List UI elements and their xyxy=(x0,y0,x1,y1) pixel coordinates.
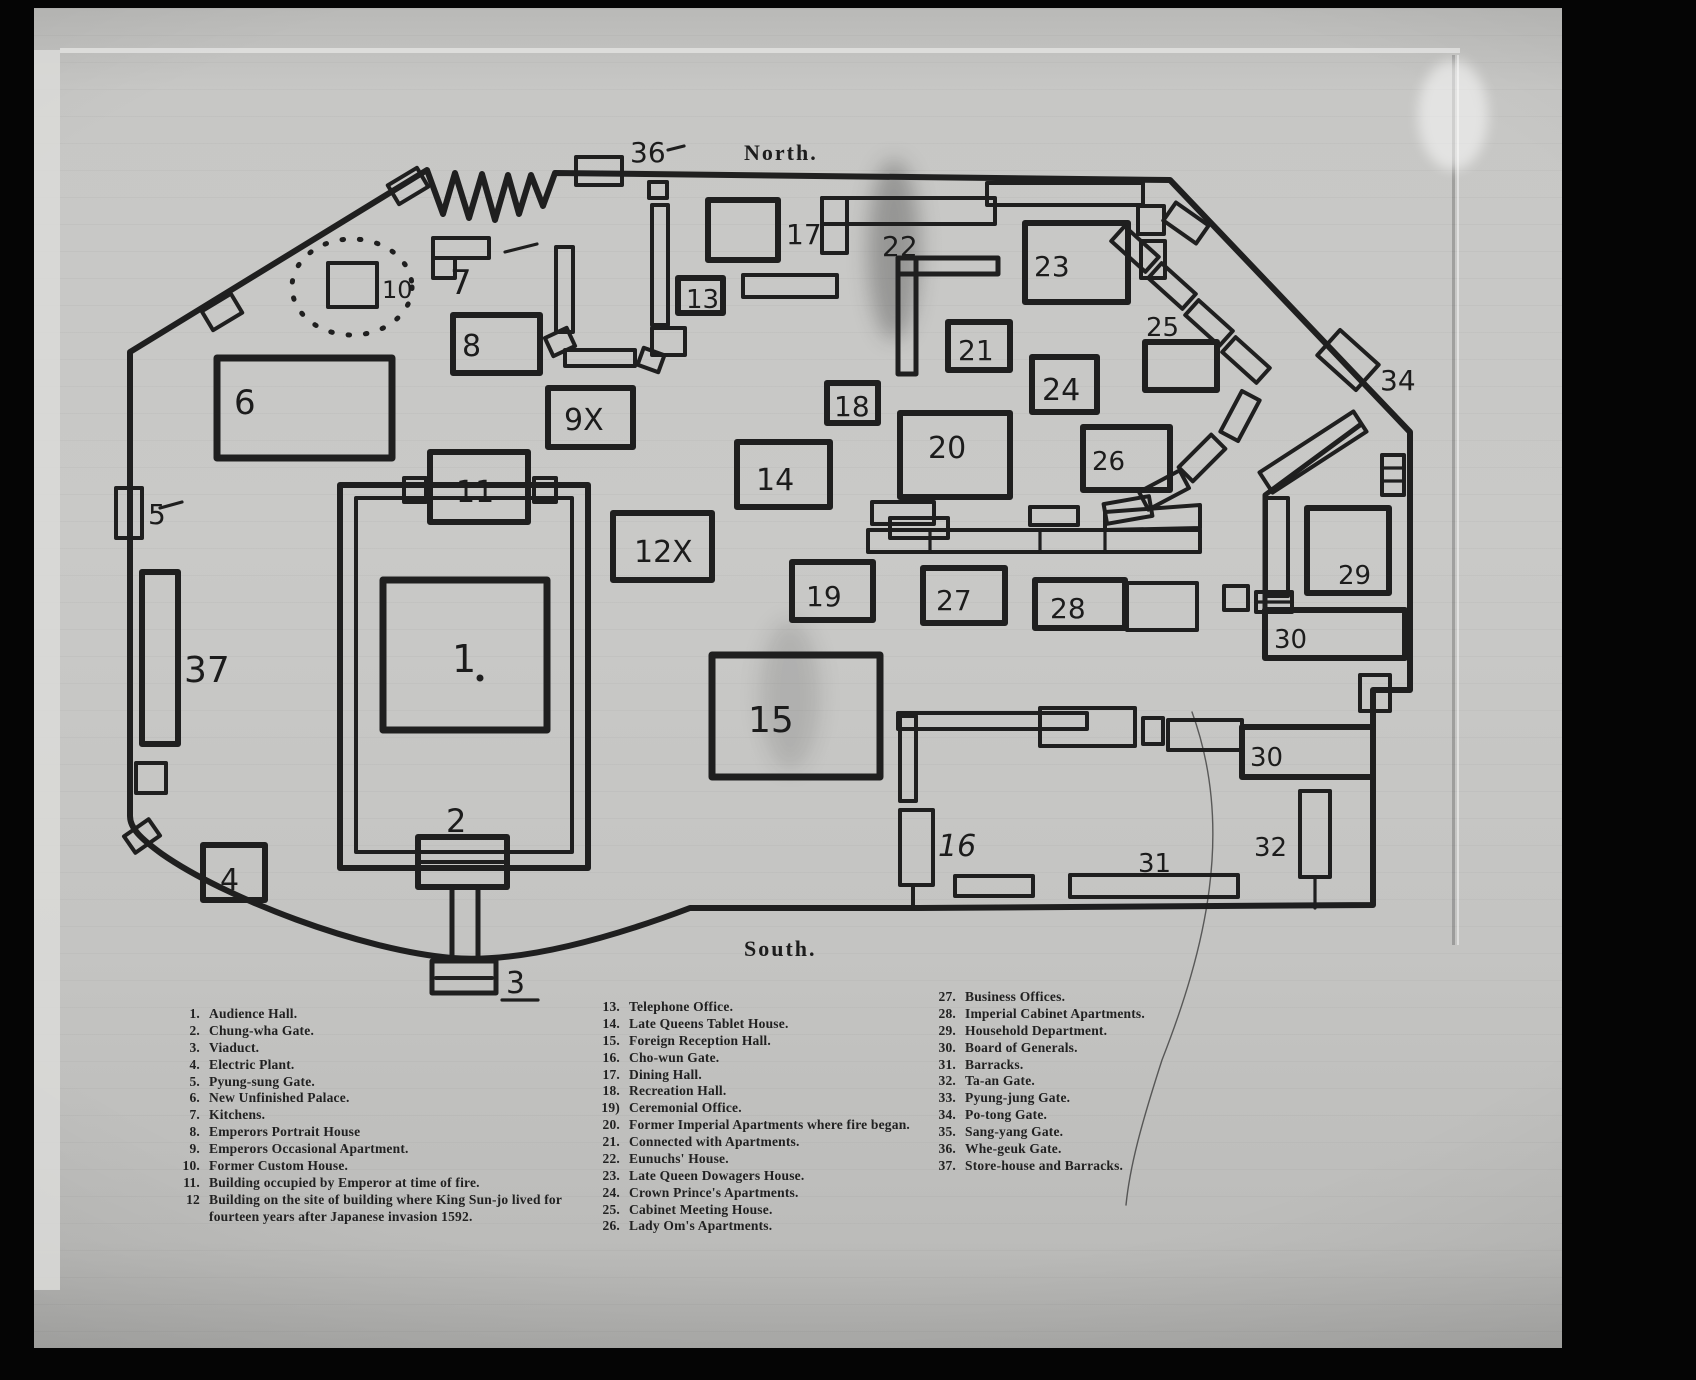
legend-item-number: 35. xyxy=(924,1124,965,1141)
legend-item: 37.Store-house and Barracks. xyxy=(924,1158,1264,1175)
legend-item-number: 8. xyxy=(168,1124,209,1141)
legend-item: 23.Late Queen Dowagers House. xyxy=(588,1168,980,1185)
legend-item: 9.Emperors Occasional Apartment. xyxy=(168,1141,568,1158)
legend-item: 36.Whe-geuk Gate. xyxy=(924,1141,1264,1158)
legend-item-text: Building on the site of building where K… xyxy=(209,1192,568,1226)
building-25-label: 25 xyxy=(1146,313,1179,343)
legend-item-text: Pyung-jung Gate. xyxy=(965,1090,1264,1107)
legend-item-text: Chung-wha Gate. xyxy=(209,1023,568,1040)
legend-item-number: 19) xyxy=(588,1100,629,1117)
legend-item-number: 23. xyxy=(588,1168,629,1185)
legend-item-text: Crown Prince's Apartments. xyxy=(629,1185,980,1202)
legend-item-number: 18. xyxy=(588,1083,629,1100)
building-17-label: 17 xyxy=(786,218,822,251)
legend-item-text: New Unfinished Palace. xyxy=(209,1090,568,1107)
legend-item-number: 30. xyxy=(924,1040,965,1057)
legend-item: 34.Po-tong Gate. xyxy=(924,1107,1264,1124)
legend-item-number: 16. xyxy=(588,1050,629,1067)
building-6-label: 6 xyxy=(234,383,256,423)
building-12x-label: 12X xyxy=(634,535,693,570)
emperors-occasional-apartment-9x: 9X xyxy=(548,388,633,447)
legend-item: 15.Foreign Reception Hall. xyxy=(588,1033,980,1050)
ta-an-gate-32: 32 xyxy=(1254,791,1330,908)
business-offices-27: 27 xyxy=(923,568,1005,623)
building-11-label: 11 xyxy=(456,475,494,510)
legend-item-text: Viaduct. xyxy=(209,1040,568,1057)
legend-item: 24.Crown Prince's Apartments. xyxy=(588,1185,980,1202)
legend-item-text: Cabinet Meeting House. xyxy=(629,1202,980,1219)
legend-item-number: 15. xyxy=(588,1033,629,1050)
ceremonial-office-19: 19 xyxy=(792,562,873,620)
building-21-label: 21 xyxy=(958,334,994,367)
building-20-label: 20 xyxy=(928,431,966,466)
former-custom-house-10: 10 xyxy=(292,239,413,335)
legend-item-number: 12 xyxy=(168,1192,209,1226)
legend-column-2: 13.Telephone Office.14.Late Queens Table… xyxy=(588,999,980,1235)
electric-plant-4: 4 xyxy=(203,845,265,900)
scanned-palace-map-page: 36 34 5 37 4 6 xyxy=(0,0,1696,1380)
legend-item-number: 7. xyxy=(168,1107,209,1124)
building-24-label: 24 xyxy=(1042,373,1080,408)
legend-item: 6.New Unfinished Palace. xyxy=(168,1090,568,1107)
legend-item-number: 36. xyxy=(924,1141,965,1158)
legend-item-number: 31. xyxy=(924,1057,965,1074)
legend-item-text: Sang-yang Gate. xyxy=(965,1124,1264,1141)
gate-16-label: 16 xyxy=(938,829,976,864)
legend-item: 32.Ta-an Gate. xyxy=(924,1073,1264,1090)
legend-item-number: 4. xyxy=(168,1057,209,1074)
board-of-generals-30-lower: 30 xyxy=(1242,727,1373,777)
building-27-label: 27 xyxy=(936,584,972,617)
imperial-cabinet-apartments-28: 28 xyxy=(1035,580,1197,630)
gate-2-label: 2 xyxy=(446,802,466,840)
legend-item-text: Whe-geuk Gate. xyxy=(965,1141,1264,1158)
legend-item-text: Building occupied by Emperor at time of … xyxy=(209,1175,568,1192)
legend-item-number: 14. xyxy=(588,1016,629,1033)
building-15-label: 15 xyxy=(748,700,794,741)
legend-item: 26.Lady Om's Apartments. xyxy=(588,1218,980,1235)
legend-column-3: 27.Business Offices.28.Imperial Cabinet … xyxy=(924,989,1264,1175)
legend-item: 8.Emperors Portrait House xyxy=(168,1124,568,1141)
viaduct-3: 3 xyxy=(432,887,538,1001)
legend-item: 1.Audience Hall. xyxy=(168,1006,568,1023)
gate-32-label: 32 xyxy=(1254,833,1287,863)
north-label: North. xyxy=(744,140,818,165)
building-1-label: 1 xyxy=(452,637,476,681)
building-7-label: 7 xyxy=(450,263,472,303)
legend-item: 20.Former Imperial Apartments where fire… xyxy=(588,1117,980,1134)
barracks-31: 31 xyxy=(955,849,1238,897)
legend-item: 17.Dining Hall. xyxy=(588,1067,980,1084)
legend-item: 10.Former Custom House. xyxy=(168,1158,568,1175)
legend-item: 13.Telephone Office. xyxy=(588,999,980,1016)
legend-item-text: Business Offices. xyxy=(965,989,1264,1006)
legend-item: 19)Ceremonial Office. xyxy=(588,1100,980,1117)
legend-item-number: 9. xyxy=(168,1141,209,1158)
legend-item: 27.Business Offices. xyxy=(924,989,1264,1006)
dining-hall-17: 17 xyxy=(708,200,822,260)
legend-item-text: Ta-an Gate. xyxy=(965,1073,1264,1090)
building-29-label: 29 xyxy=(1338,561,1371,591)
building-4-label: 4 xyxy=(220,863,239,898)
legend-item-number: 20. xyxy=(588,1117,629,1134)
legend-item: 35.Sang-yang Gate. xyxy=(924,1124,1264,1141)
imperial-apartments-20: 20 xyxy=(900,413,1010,497)
legend-item-number: 27. xyxy=(924,989,965,1006)
new-unfinished-palace-6: 6 xyxy=(217,358,392,458)
legend-item-number: 32. xyxy=(924,1073,965,1090)
legend-item: 7.Kitchens. xyxy=(168,1107,568,1124)
legend-item-text: Barracks. xyxy=(965,1057,1264,1074)
legend-item: 14.Late Queens Tablet House. xyxy=(588,1016,980,1033)
legend-item-number: 28. xyxy=(924,1006,965,1023)
legend-item-number: 25. xyxy=(588,1202,629,1219)
legend-item-number: 11. xyxy=(168,1175,209,1192)
legend-item-text: Emperors Portrait House xyxy=(209,1124,568,1141)
legend-item: 31.Barracks. xyxy=(924,1057,1264,1074)
chung-wha-gate-2: 2 xyxy=(418,802,507,887)
legend-item-number: 10. xyxy=(168,1158,209,1175)
legend-item-number: 33. xyxy=(924,1090,965,1107)
legend-item: 18.Recreation Hall. xyxy=(588,1083,980,1100)
cho-wun-gate-16: 16 xyxy=(900,810,976,885)
legend-item: 33.Pyung-jung Gate. xyxy=(924,1090,1264,1107)
telephone-office-13: 13 xyxy=(678,278,723,315)
legend-item-number: 5. xyxy=(168,1074,209,1091)
building-10-label: 10 xyxy=(382,276,413,304)
legend-item-text: Former Custom House. xyxy=(209,1158,568,1175)
legend-item-text: Electric Plant. xyxy=(209,1057,568,1074)
legend-item: 2.Chung-wha Gate. xyxy=(168,1023,568,1040)
legend-item-number: 17. xyxy=(588,1067,629,1084)
legend-item: 22.Eunuchs' House. xyxy=(588,1151,980,1168)
legend-item: 29.Household Department. xyxy=(924,1023,1264,1040)
building-26-label: 26 xyxy=(1092,447,1125,477)
legend-item-text: Kitchens. xyxy=(209,1107,568,1124)
building-28-label: 28 xyxy=(1050,592,1086,625)
legend-column-1: 1.Audience Hall.2.Chung-wha Gate.3.Viadu… xyxy=(168,1006,568,1225)
legend-item-number: 24. xyxy=(588,1185,629,1202)
legend-item-text: Emperors Occasional Apartment. xyxy=(209,1141,568,1158)
legend-item: 16.Cho-wun Gate. xyxy=(588,1050,980,1067)
building-31-label: 31 xyxy=(1138,849,1171,879)
gate-36-label: 36 xyxy=(630,136,666,169)
legend-item-number: 3. xyxy=(168,1040,209,1057)
legend-item: 4.Electric Plant. xyxy=(168,1057,568,1074)
recreation-hall-18: 18 xyxy=(827,383,878,423)
building-8-label: 8 xyxy=(462,329,481,364)
legend-item: 5.Pyung-sung Gate. xyxy=(168,1074,568,1091)
building-23-label: 23 xyxy=(1034,250,1070,283)
queen-dowagers-house-23: 23 xyxy=(1025,223,1128,302)
pyung-sung-gate-5: 5 xyxy=(116,488,182,538)
legend-item-number: 34. xyxy=(924,1107,965,1124)
legend-item-text: Store-house and Barracks. xyxy=(965,1158,1264,1175)
legend-item-number: 6. xyxy=(168,1090,209,1107)
legend-item-text: Imperial Cabinet Apartments. xyxy=(965,1006,1264,1023)
emperors-portrait-house-8: 8 xyxy=(453,315,540,373)
legend-item: 30.Board of Generals. xyxy=(924,1040,1264,1057)
legend-item-text: Audience Hall. xyxy=(209,1006,568,1023)
gate-34-label: 34 xyxy=(1380,364,1416,397)
legend-item-number: 29. xyxy=(924,1023,965,1040)
legend-item: 12Building on the site of building where… xyxy=(168,1192,568,1226)
legend-item-text: Lady Om's Apartments. xyxy=(629,1218,980,1235)
legend-item: 21.Connected with Apartments. xyxy=(588,1134,980,1151)
legend-item: 25.Cabinet Meeting House. xyxy=(588,1202,980,1219)
legend-item-number: 37. xyxy=(924,1158,965,1175)
legend-item: 28.Imperial Cabinet Apartments. xyxy=(924,1006,1264,1023)
apartments-21: 21 xyxy=(948,322,1010,370)
legend-item-text: Po-tong Gate. xyxy=(965,1107,1264,1124)
foreign-reception-hall-15: 15 xyxy=(712,655,880,777)
building-9x-label: 9X xyxy=(564,403,604,438)
building-14-label: 14 xyxy=(756,463,794,498)
building-37-label: 37 xyxy=(184,650,230,691)
emperor-building-11: 11 xyxy=(404,452,556,522)
king-sunjo-site-12x: 12X xyxy=(613,513,712,580)
building-30a-label: 30 xyxy=(1274,625,1307,655)
legend-item-text: Board of Generals. xyxy=(965,1040,1264,1057)
legend-item-text: Pyung-sung Gate. xyxy=(209,1074,568,1091)
whe-geuk-gate-36: 36 xyxy=(576,136,684,185)
boundary-wall xyxy=(130,170,1410,959)
building-18-label: 18 xyxy=(834,390,870,423)
legend-item-number: 1. xyxy=(168,1006,209,1023)
building-19-label: 19 xyxy=(806,580,842,613)
legend-item: 11.Building occupied by Emperor at time … xyxy=(168,1175,568,1192)
crown-prince-apartments-24: 24 xyxy=(1032,357,1097,412)
cabinet-meeting-house-25: 25 xyxy=(1145,313,1217,390)
kitchens-7: 7 xyxy=(433,238,537,303)
legend-item-number: 2. xyxy=(168,1023,209,1040)
viaduct-3-label: 3 xyxy=(506,966,525,1001)
building-30b-label: 30 xyxy=(1250,743,1283,773)
legend-item-text: Household Department. xyxy=(965,1023,1264,1040)
legend-item-number: 26. xyxy=(588,1218,629,1235)
legend-item: 3.Viaduct. xyxy=(168,1040,568,1057)
tablet-house-14: 14 xyxy=(737,442,830,507)
legend-item-number: 22. xyxy=(588,1151,629,1168)
household-department-29: 29 xyxy=(1256,411,1404,640)
building-13-label: 13 xyxy=(686,285,719,315)
legend-item-number: 13. xyxy=(588,999,629,1016)
south-label: South. xyxy=(744,936,817,961)
storehouse-37: 37 xyxy=(136,572,230,793)
legend-item-number: 21. xyxy=(588,1134,629,1151)
gate-5-label: 5 xyxy=(148,498,166,531)
